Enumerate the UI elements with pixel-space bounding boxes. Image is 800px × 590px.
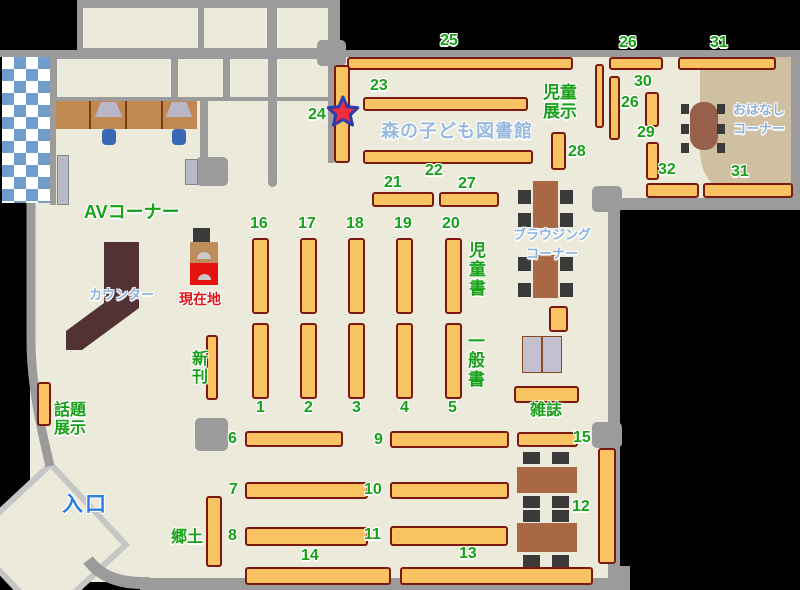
chair [552,452,569,464]
shelf-9 [390,431,509,448]
new-books-label: 新刊 [185,350,209,386]
shelf-8 [245,527,368,546]
library-floor-map: 25 23 24 22 21 27 16 17 18 19 20 1 2 3 4… [0,0,800,590]
shelf-label-17: 17 [298,215,316,233]
shelf-26-vertical [609,76,620,140]
shelf-label-18: 18 [346,215,364,233]
shelf-label-7: 7 [229,481,238,499]
entrance-label: 入口 [62,488,108,518]
shelf-label-5: 5 [448,399,457,417]
shelf-label-9: 9 [374,431,383,449]
shelf-17 [300,238,317,314]
shelf-label-10: 10 [364,481,382,499]
shelf-label-8: 8 [228,527,237,545]
shelf-label-13: 13 [459,545,477,563]
shelf-label-2: 2 [304,399,313,417]
shelf-13 [400,567,593,585]
shelf-20 [445,238,462,314]
shelf-26-top [609,57,663,70]
shelf-label-31-bottom: 31 [731,163,749,181]
shelf-label-26-vertical: 26 [621,94,639,112]
shelf-label-15: 15 [573,429,591,447]
chair [518,283,531,297]
shelf-small [549,306,568,332]
counter-label: カウンター [89,284,154,303]
map-kiosk-arc [198,274,211,280]
shelf-1 [252,323,269,399]
shelf-31-top [678,57,776,70]
shelf-label-25: 25 [440,32,458,50]
shelf-label-20: 20 [442,215,460,233]
chair [552,496,569,508]
av-corner-label: AVコーナー [84,203,180,223]
door [185,159,198,185]
magazine-sofa-divider [541,336,543,373]
shelf-label-31-top: 31 [710,34,728,52]
shelf-14 [245,567,391,585]
current-location-star-icon [327,94,361,130]
av-desk-divider [89,101,91,129]
story-table [690,102,718,150]
shelf-18 [348,238,365,314]
chair [681,143,689,153]
shelf-5 [445,323,462,399]
map-title: 森の子ども図書館 [381,117,533,143]
story-corner-label: おはなし コーナー [733,99,793,137]
shelf-28 [551,132,566,170]
shelf-label-14: 14 [301,547,319,565]
chair [552,555,569,567]
current-location-label: 現在地 [179,289,221,309]
children-display-label: 児童 展示 [543,84,577,121]
shelf-2 [300,323,317,399]
map-kiosk-top [193,228,210,242]
left-curved-wall [31,203,50,466]
shelf-3 [348,323,365,399]
shelf-label-23: 23 [370,77,388,95]
shelf-7 [245,482,368,499]
shelf-label-21: 21 [384,174,402,192]
shelf-label-26-top: 26 [619,34,637,52]
shelf-12 [598,448,616,564]
shelf-6 [245,431,343,447]
shelf-label-22: 22 [425,162,443,180]
chair [681,104,689,114]
chair-blue [102,129,116,145]
chair [681,124,689,134]
door [57,155,69,205]
magazines-label: 雑誌 [530,402,562,420]
shelf-16 [252,238,269,314]
general-books-label: 一般書 [462,332,487,389]
shelf-label-32: 32 [658,161,676,179]
shelf-label-30: 30 [634,73,652,91]
shelf-19 [396,238,413,314]
shelf-10 [390,482,509,499]
chair [523,452,540,464]
shelf-label-4: 4 [400,399,409,417]
chair [552,510,569,522]
shelf-label-1: 1 [256,399,265,417]
shelf-22 [363,150,533,164]
chair-blue [172,129,186,145]
study-table [517,523,577,552]
shelf-11 [390,526,508,546]
study-table [517,467,577,493]
shelf-label-29: 29 [637,124,655,142]
map-kiosk-arc [197,252,211,259]
shelf-23 [363,97,528,111]
browsing-corner-label: ブラウジング コーナー [506,224,598,262]
shelf-topic-display [37,382,51,426]
local-books-label: 郷土 [171,529,203,547]
shelf-4 [396,323,413,399]
chair [560,190,573,204]
chair [717,143,725,153]
chair [523,510,540,522]
av-desk-divider [161,101,163,129]
topic-display-label: 話題 展示 [54,402,86,437]
shelf-magazines [514,386,579,403]
chair [717,104,725,114]
shelf-label-16: 16 [250,215,268,233]
shelf-32 [646,183,699,198]
children-books-label: 児童書 [463,241,488,298]
shelf-15 [517,432,578,447]
shelf-label-6: 6 [228,430,237,448]
shelf-label-11: 11 [364,526,381,544]
shelf-31-bottom [703,183,793,198]
chair [560,283,573,297]
shelf-label-27: 27 [458,175,476,193]
shelf-21 [372,192,434,207]
av-desk-divider [125,101,127,129]
shelf-label-24: 24 [308,106,326,124]
shelf-local-books [206,496,222,567]
shelf-25 [347,57,573,70]
shelf-label-28: 28 [568,143,586,161]
shelf-label-3: 3 [352,399,361,417]
chair [518,190,531,204]
shelf-30 [645,92,659,127]
shelf-27 [439,192,499,207]
browsing-table [533,181,558,228]
shelf-label-12: 12 [572,498,590,516]
chair [717,124,725,134]
entrance-bottom-wall [88,560,150,583]
chair [523,555,540,567]
shelf-label-19: 19 [394,215,412,233]
chair [523,496,540,508]
shelf-display [595,64,604,128]
